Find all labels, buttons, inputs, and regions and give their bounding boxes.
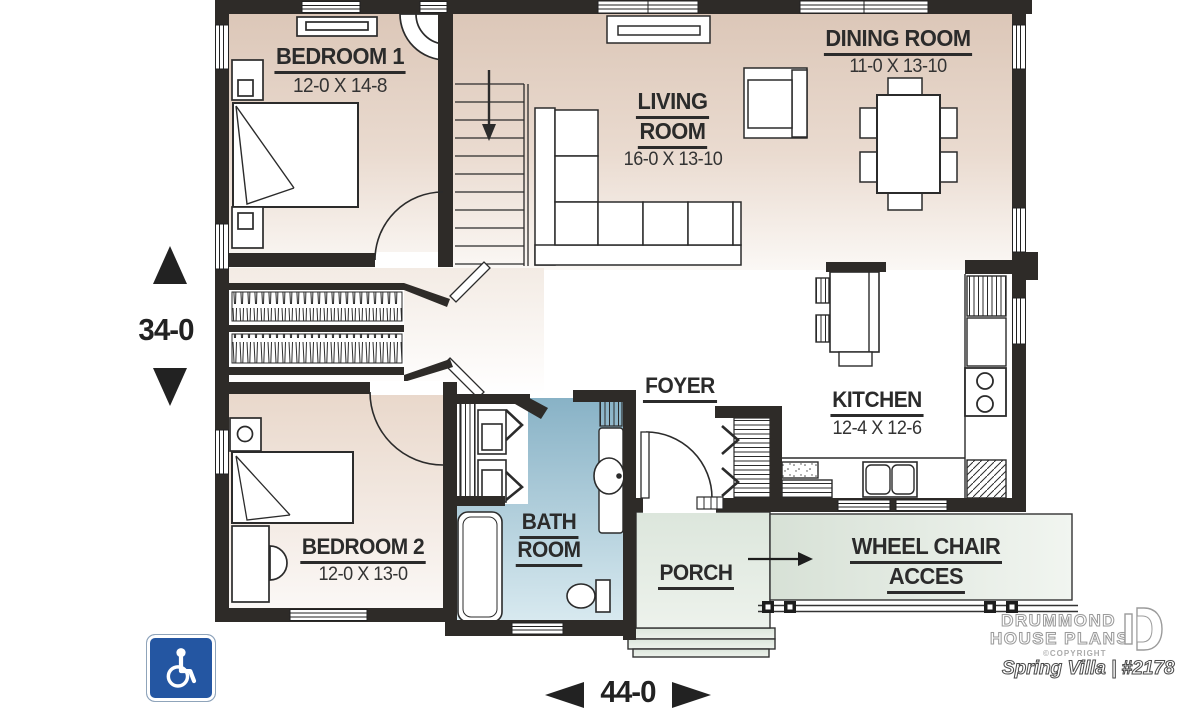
brand-name-line1: DRUMMOND [990,612,1116,630]
floor-plan-drawing [0,0,1200,711]
copyright-text: ©COPYRIGHT [1043,649,1106,658]
dim-arrow-right-icon [672,682,711,708]
label-living-1: LIVING [618,89,727,119]
label-kitchen: KITCHEN [827,388,928,417]
label-bathroom-2: ROOM [514,538,584,567]
plan-title: Spring Villa | #2178 [1002,658,1168,680]
wheelchair-accessible-icon [146,634,216,702]
dims-kitchen: 12-4 X 12-6 [821,418,933,440]
dim-arrow-down-icon [153,368,187,406]
drummond-d-logo-icon [1122,606,1164,652]
label-wheelchair-2: ACCES [844,564,1007,594]
wheelchair-symbol [158,645,204,691]
label-porch: PORCH [654,561,738,590]
dims-living: 16-0 X 13-10 [611,149,735,171]
label-bedroom2: BEDROOM 2 [292,535,435,564]
label-bathroom-1: BATH [514,510,584,539]
dims-bedroom2: 12-0 X 13-0 [292,564,435,586]
label-dining: DINING ROOM [822,26,974,56]
dim-arrow-up-icon [153,246,187,284]
label-foyer: FOYER [640,374,720,403]
brand-name-line2: HOUSE PLANS [990,630,1116,648]
floor-plan-page: BEDROOM 1 12-0 X 14-8 LIVING ROOM 16-0 X… [0,0,1200,711]
label-wheelchair-1: WHEEL CHAIR [844,534,1007,564]
dims-bedroom1: 12-0 X 14-8 [268,75,412,98]
label-bedroom1: BEDROOM 1 [268,44,412,74]
label-living-2: ROOM [618,119,727,149]
dim-height: 34-0 [126,312,206,348]
dim-width: 44-0 [590,674,666,710]
dim-arrow-left-icon [545,682,584,708]
kitchen-fixtures [722,262,1006,498]
dims-dining: 11-0 X 13-10 [822,56,974,78]
